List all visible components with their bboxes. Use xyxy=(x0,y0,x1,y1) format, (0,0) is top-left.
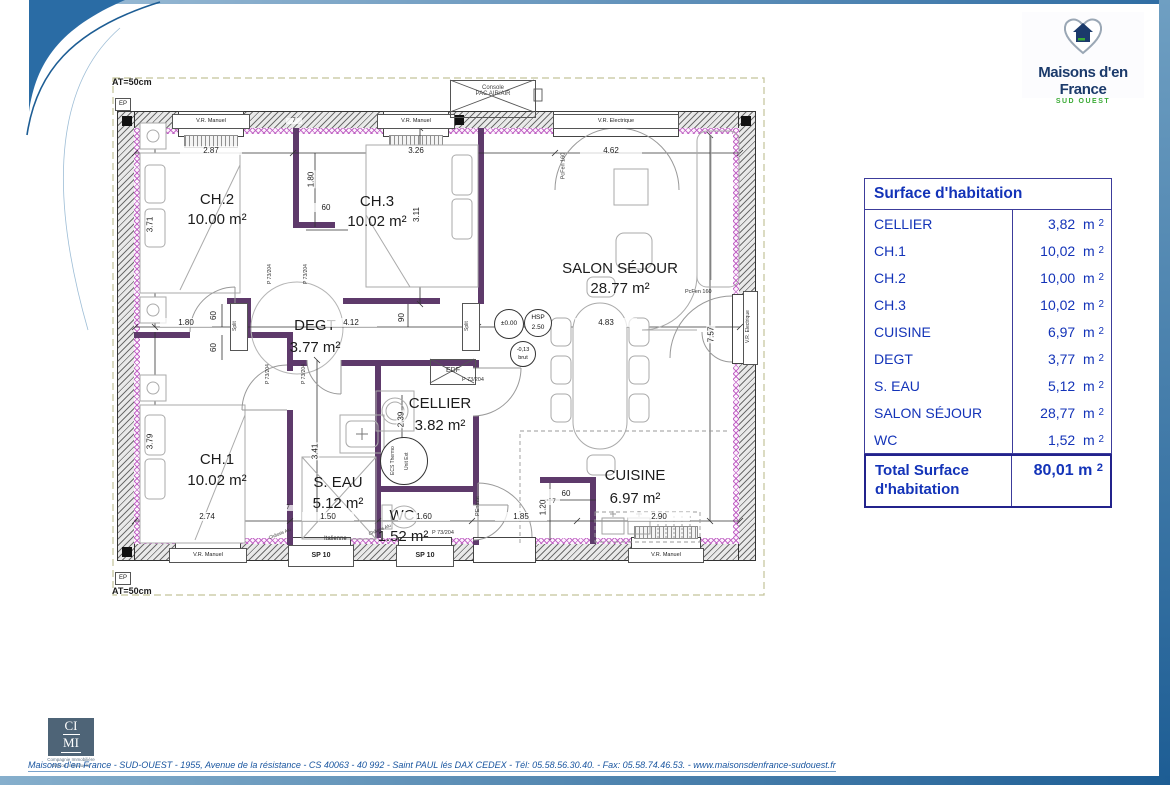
room-area: 10.02 m² xyxy=(172,472,262,489)
dim-label: 4.62 xyxy=(580,146,642,155)
heart-house-icon xyxy=(1061,15,1105,57)
row-label: CUISINE xyxy=(865,324,1012,340)
company-logo: Maisons d'en France SUD OUEST xyxy=(1022,12,1144,98)
window-label: V.R. Manuel xyxy=(628,548,704,563)
dim-label: 1.80 xyxy=(160,318,212,327)
room-area: 10.02 m² xyxy=(332,213,422,230)
row-value: 1,52 m 2 xyxy=(1012,426,1111,453)
cimi-square: CI MI xyxy=(48,718,94,756)
table-row: SALON SÉJOUR 28,77 m 2 xyxy=(865,399,1111,426)
dim-label: 7 xyxy=(548,499,560,505)
window-label: V.R. Manuel xyxy=(377,114,455,129)
row-label: DEGT xyxy=(865,351,1012,367)
ep-marker: EP xyxy=(115,572,131,585)
row-label: CELLIER xyxy=(865,216,1012,232)
split-unit: Split xyxy=(462,303,480,351)
row-value: 5,12 m 2 xyxy=(1012,372,1111,399)
dim-label: 2.39 xyxy=(396,411,405,429)
dim-label: 2.74 xyxy=(176,512,238,521)
row-value: 6,97 m 2 xyxy=(1012,318,1111,345)
window-label-sp10: SP 10 xyxy=(396,545,454,567)
window-label: V.R. Manuel xyxy=(169,548,247,563)
floor-plan: V.R. Manuel V.R. Manuel V.R. Electrique … xyxy=(110,75,770,600)
table-row: CH.3 10,02 m 2 xyxy=(865,291,1111,318)
door-ref-label: PEntrée xyxy=(475,496,481,516)
room-area: 5.12 m² xyxy=(298,495,378,512)
room-area: 6.97 m² xyxy=(580,490,690,507)
surface-table-title: Surface d'habitation xyxy=(864,178,1112,210)
attic-note: AT=50cm xyxy=(112,586,152,596)
dim-label: 3.41 xyxy=(310,443,319,461)
room-name: CH.1 xyxy=(172,451,262,468)
row-value: 3,82 m 2 xyxy=(1012,210,1111,237)
dim-label: 1.20 xyxy=(538,499,547,517)
dim-label: 4.12 xyxy=(325,318,377,327)
window-label-vertical: V.R. Electrique xyxy=(743,291,758,365)
room-area: 10.00 m² xyxy=(172,211,262,228)
level-marker: ±0.00 xyxy=(494,309,524,339)
split-unit: Split xyxy=(230,303,248,351)
row-label: CH.2 xyxy=(865,270,1012,286)
dim-label: 3.11 xyxy=(412,206,421,223)
door-ref-label: PcFen 160 xyxy=(560,153,566,180)
dim-label: 4.83 xyxy=(575,318,637,327)
row-value: 3,77 m 2 xyxy=(1012,345,1111,372)
table-row: WC 1,52 m 2 xyxy=(865,426,1111,453)
shower-type-label: Italienne xyxy=(324,536,347,542)
table-row: CH.1 10,02 m 2 xyxy=(865,237,1111,264)
row-label: S. EAU xyxy=(865,378,1012,394)
row-value: 10,00 m 2 xyxy=(1012,264,1111,291)
ep-marker: EP xyxy=(115,98,131,111)
dim-label: 60 xyxy=(548,489,584,498)
door-ref-label: P 73/204 xyxy=(265,364,271,384)
total-value: 80,01 m 2 xyxy=(1011,456,1110,506)
window-label: V.R. Electrique xyxy=(553,114,679,129)
row-label: WC xyxy=(865,432,1012,448)
row-label: CH.3 xyxy=(865,297,1012,313)
row-value: 10,02 m 2 xyxy=(1012,291,1111,318)
room-name: SALON SÉJOUR xyxy=(550,260,690,277)
page-border-right xyxy=(1159,0,1170,785)
room-area: 3.77 m² xyxy=(275,339,355,356)
ceiling-height-marker: HSP2.50 xyxy=(524,309,552,337)
window-label: V.R. Manuel xyxy=(172,114,250,129)
ecs-water-heater: ECS ThermoUnit Ext xyxy=(380,437,428,485)
dim-label: 2.87 xyxy=(180,146,242,155)
footer-address-line: Maisons d'en France - SUD-OUEST - 1955, … xyxy=(28,760,836,772)
logo-subtitle: SUD OUEST xyxy=(1022,98,1144,105)
level-marker-brut: -0,13brut xyxy=(510,341,536,367)
dim-label: 60 xyxy=(209,342,218,353)
table-row: DEGT 3,77 m 2 xyxy=(865,345,1111,372)
room-name: CUISINE xyxy=(580,467,690,484)
door-ref-label: P 73/204 xyxy=(301,364,307,384)
window-label-sp10: SP 10 xyxy=(288,545,354,567)
dim-label: 3.26 xyxy=(385,146,447,155)
room-area: 3.82 m² xyxy=(400,417,480,434)
door-ref-label: PcFen 160 xyxy=(685,289,712,295)
room-name: CH.3 xyxy=(332,193,422,210)
dim-label: 60 xyxy=(209,310,218,321)
door-ref-label: P 73/204 xyxy=(432,530,454,536)
door-ref-label: P 73/204 xyxy=(462,377,484,383)
dim-label: 3.79 xyxy=(145,433,154,451)
table-row: CH.2 10,00 m 2 xyxy=(865,264,1111,291)
logo-title: Maisons d'en France xyxy=(1022,64,1144,98)
room-name: CELLIER xyxy=(400,395,480,412)
table-row: S. EAU 5,12 m 2 xyxy=(865,372,1111,399)
dim-label: 7 xyxy=(280,505,296,511)
total-label: Total Surface d'habitation xyxy=(866,456,1011,506)
dim-label: 7.57 xyxy=(706,326,715,344)
row-value: 10,02 m 2 xyxy=(1012,237,1111,264)
dim-label: 7 xyxy=(286,118,302,124)
dim-label: 1.60 xyxy=(398,512,450,521)
surface-table: Surface d'habitation CELLIER 3,82 m 2 CH… xyxy=(864,178,1112,508)
row-value: 28,77 m 2 xyxy=(1012,399,1111,426)
room-name: S. EAU xyxy=(298,474,378,491)
attic-note: AT=50cm xyxy=(112,77,152,87)
dim-label: 90 xyxy=(397,312,406,323)
dim-label: 3.71 xyxy=(145,216,154,234)
row-label: SALON SÉJOUR xyxy=(865,405,1012,421)
dim-label: 60 xyxy=(310,203,342,212)
table-row: CUISINE 6,97 m 2 xyxy=(865,318,1111,345)
room-area: 28.77 m² xyxy=(550,280,690,297)
room-name: CH.2 xyxy=(172,191,262,208)
pac-unit-box: ConsolePAC AIR/AIR xyxy=(450,80,536,118)
door-ref-label: P 73/204 xyxy=(267,264,273,284)
dim-label: 2.90 xyxy=(628,512,690,521)
page-border-bottom xyxy=(0,776,1170,785)
table-total-row: Total Surface d'habitation 80,01 m 2 xyxy=(864,454,1112,508)
dim-label: 1.50 xyxy=(302,512,354,521)
row-label: CH.1 xyxy=(865,243,1012,259)
door-ref-label: P 73/204 xyxy=(303,264,309,284)
dim-label: 1.80 xyxy=(306,171,315,189)
surface-table-body: CELLIER 3,82 m 2 CH.1 10,02 m 2 CH.2 10,… xyxy=(864,210,1112,454)
table-row: CELLIER 3,82 m 2 xyxy=(865,210,1111,237)
